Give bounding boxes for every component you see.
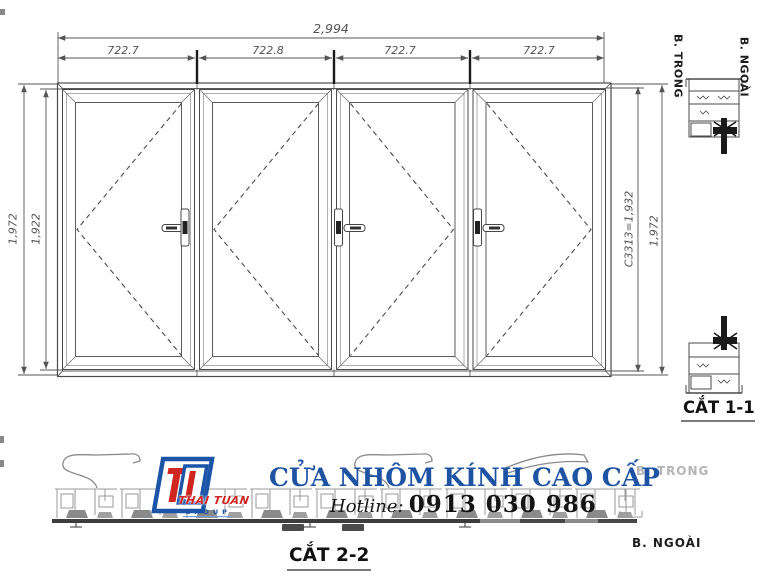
door-handle-1 (162, 209, 189, 246)
label-head-outside: B. NGOÀI (738, 37, 751, 97)
panel-2-swing-symbol (214, 104, 319, 356)
dim-panel-2: 722.8 (252, 44, 284, 57)
dim-left-inner-height: 1,922 (30, 213, 43, 245)
section-1-label: CẮT 1-1 (681, 398, 755, 422)
sill-lock-detail (713, 316, 737, 350)
dim-panel-3: 722.7 (384, 44, 416, 57)
logo-group-text: GROUP (185, 508, 231, 516)
logo-underline (183, 516, 231, 517)
dim-panel-4: 722.7 (523, 44, 555, 57)
door-technical-drawing-sheet: 2,994 722.7 722.8 722.7 722.7 1,972 1,92… (0, 0, 768, 576)
plan-dim-chip-1 (282, 524, 304, 531)
logo-brand-name: THAI TUAN (177, 494, 250, 507)
hotline-label: Hotline: (330, 496, 404, 517)
section-detail-sill (686, 316, 742, 393)
plan-dim-chip-2 (342, 524, 364, 531)
dim-left-outer-height: 1,972 (7, 213, 20, 245)
hotline-number: 0913 030 986 (409, 491, 597, 518)
label-plan-outside: B. NGOÀI (632, 536, 701, 550)
door-panel-2 (200, 90, 332, 370)
door-handle-3 (474, 209, 505, 246)
dim-right-inner-height: C3313=1,932 (623, 191, 636, 267)
hotline-line: Hotline: 0913 030 986 (330, 491, 597, 518)
dim-total-width: 2,994 (313, 21, 349, 36)
sheet-edge-marks (0, 9, 5, 467)
section-detail-head (686, 79, 742, 154)
panel-3-swing-symbol (351, 104, 454, 356)
footer-title: CỬA NHÔM KÍNH CAO CẤP (269, 463, 660, 492)
dim-right-outer-height: 1,972 (648, 215, 661, 247)
section-2-label: CẮT 2-2 (287, 545, 371, 571)
label-head-inside: B. TRONG (672, 34, 685, 98)
dim-panel-1: 722.7 (107, 44, 139, 57)
